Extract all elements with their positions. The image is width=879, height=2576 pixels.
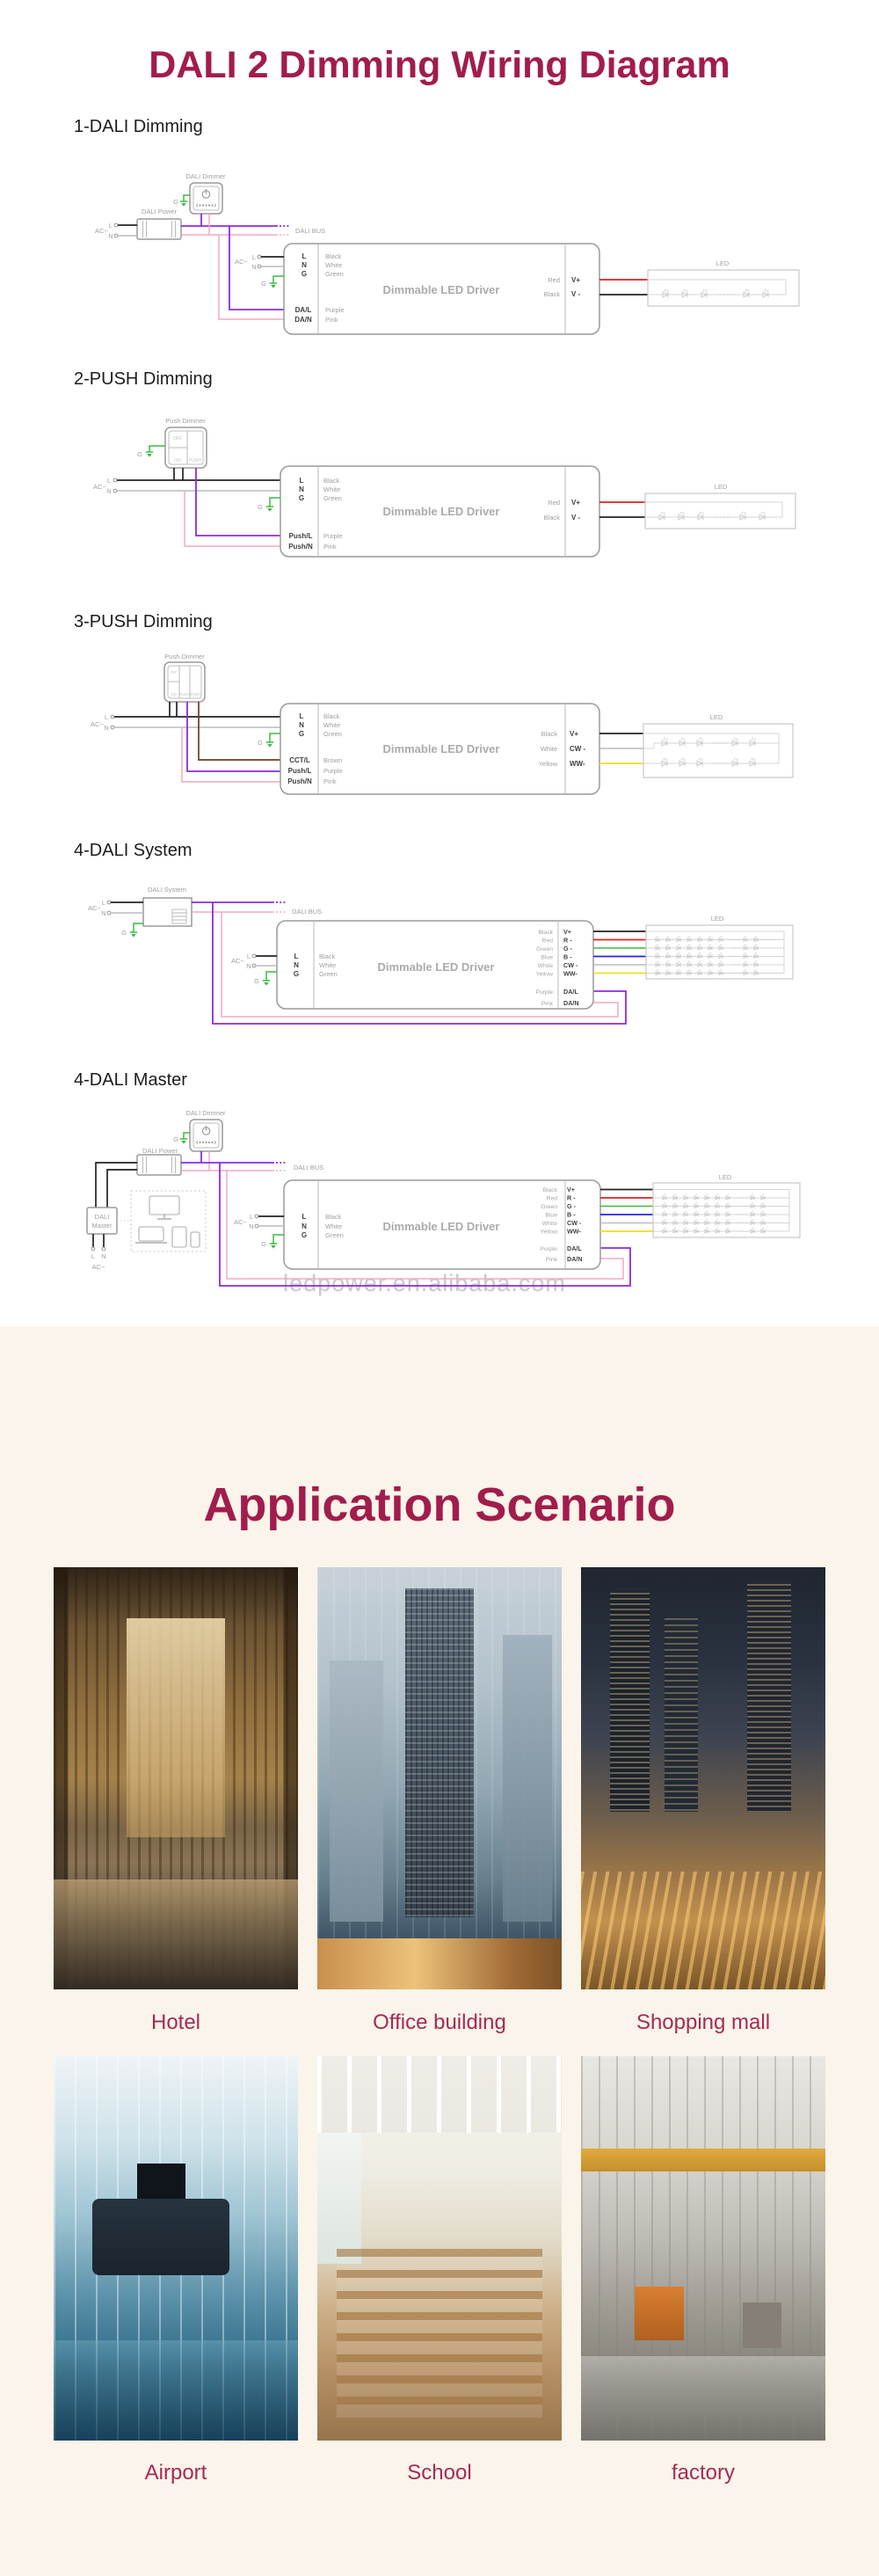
terminal-g: G (294, 970, 299, 978)
terminal-dot (252, 954, 256, 958)
dali-bus-label: DALI BUS (295, 227, 325, 235)
photo-hotel-detail (127, 1618, 224, 1838)
photo-office-detail (330, 1660, 383, 1923)
photo-mall-detail (610, 1593, 649, 1813)
switch-on-label: ON (174, 458, 181, 463)
page-title: DALI 2 Dimming Wiring Diagram (0, 44, 879, 87)
switch-on-label: ON (171, 692, 176, 697)
terminal-pushn: Push/N (288, 543, 313, 551)
wiring-diagram-3-push-dimming: Push Dimmer OFF ON PUSH PUSH AC~ L N (0, 629, 879, 822)
terminal-dal: DA/L (567, 1244, 582, 1252)
terminal-dot (113, 478, 117, 482)
wire-color-label: Purple (535, 989, 553, 996)
photo-factory-detail (635, 2287, 684, 2340)
dali-power-device: DALI Power AC~ L N (95, 208, 181, 240)
led-label: LED (715, 483, 728, 491)
tablet-icon (172, 1227, 186, 1247)
wire-color-label: White (323, 721, 340, 729)
led-label: LED (719, 1173, 732, 1181)
photo-school-detail (317, 2056, 562, 2133)
diagram-1-heading: 1-DALI Dimming (74, 117, 203, 137)
photo-factory-detail (581, 2356, 825, 2441)
terminal-gout: G - (563, 945, 573, 952)
terminal-g: G (301, 270, 307, 278)
terminal-gout: G - (567, 1202, 577, 1210)
ac-label: AC~ (91, 720, 104, 728)
terminal-g: G (299, 494, 304, 502)
driver-name: Dimmable LED Driver (383, 505, 500, 518)
terminal-l: L (302, 252, 307, 260)
photo-school-detail (337, 2249, 542, 2418)
wire-color-label: Black (319, 952, 336, 960)
dali-bus-label: DALI BUS (294, 1164, 323, 1171)
wiring-diagram-5-dali-master: DALI Dimmer G DALI Power DALI Master (0, 1104, 879, 1293)
switch-push-label: PUSH (191, 692, 201, 697)
photo-mall-detail (581, 1872, 825, 1989)
ground-label: G (258, 503, 263, 511)
ground-icon (270, 1240, 277, 1249)
line-label: L (105, 713, 108, 721)
terminal-n: N (299, 721, 304, 729)
wire-color-label: Black (544, 290, 561, 298)
terminal-dan: DA/N (567, 1255, 583, 1263)
wire-color-label: Yellow (541, 1230, 557, 1236)
led-strip: LED (599, 259, 799, 306)
terminal-ww: WW- (563, 970, 578, 978)
wire-color-label: White (538, 963, 554, 969)
ground-icon (180, 198, 187, 207)
phone-icon (191, 1232, 200, 1247)
wire-color-label: Green (325, 1231, 344, 1239)
push-dimmer-label: Push Dimmer (164, 653, 205, 660)
ground-icon (270, 280, 277, 288)
photo-office-detail (503, 1635, 552, 1922)
wire-color-label: Black (541, 730, 558, 738)
switch-off-label: OFF (173, 436, 182, 441)
dali-power-label: DALI Power (142, 208, 178, 215)
driver-name: Dimmable LED Driver (378, 960, 495, 974)
neutral-label: N (108, 232, 113, 240)
ac-label: AC~ (92, 1263, 105, 1271)
terminal-cw: CW - (570, 745, 586, 753)
terminal-dot (113, 489, 117, 493)
wire-color-label: Red (548, 276, 560, 284)
terminal-g: G (301, 1231, 307, 1239)
wire-color-label: Pink (541, 1001, 554, 1007)
diagram-5-heading: 4-DALI Master (74, 1070, 187, 1091)
dali-system-label: DALI System (148, 886, 186, 894)
push-dimmer-device: Push Dimmer OFF ON PUSH G (137, 417, 207, 468)
wire-color-label: Black (325, 1213, 342, 1221)
ac-label: AC~ (231, 957, 244, 965)
terminal-dot (111, 715, 114, 719)
wire-color-label: White (541, 745, 557, 753)
caption-factory: factory (581, 2461, 825, 2485)
neutral-label: N (101, 909, 105, 917)
dali-master-label-line2: Master (92, 1222, 113, 1230)
line-label: L (250, 1213, 253, 1221)
terminal-dal: DA/L (563, 988, 578, 996)
photo-factory-detail (581, 2149, 825, 2171)
dali-dimmer-device: DALI Dimmer G (173, 172, 226, 214)
terminal-dot (102, 1247, 105, 1251)
ground-icon (266, 739, 273, 748)
led-driver: AC~ L N G L N G Black White Green Dimmab… (231, 921, 593, 1009)
diagram-4-heading: 4-DALI System (74, 841, 192, 861)
wire-color-label: Purple (540, 1246, 557, 1252)
caption-office-building: Office building (317, 2010, 562, 2035)
ground-label: G (258, 739, 263, 747)
ground-label: G (261, 280, 266, 288)
wire-color-label: Pink (546, 1257, 558, 1263)
wiring-diagram-4-dali-system: DALI System AC~ L N G DALI BUS (0, 875, 879, 1033)
ac-label: AC~ (234, 1218, 247, 1226)
wire-color-label: Green (541, 1204, 557, 1210)
terminal-vminus: V - (571, 290, 581, 298)
ac-label: AC~ (88, 904, 101, 912)
terminal-cw: CW - (563, 961, 578, 969)
push-dimmer-device: Push Dimmer OFF ON PUSH PUSH (164, 653, 205, 702)
wire-color-label: White (325, 1222, 342, 1230)
switch-push-label: PUSH (179, 692, 190, 697)
led-driver: L N G Black White Green G Push/L Push/N … (258, 466, 599, 557)
photo-office-building (317, 1567, 562, 1989)
led-driver: L N G Black White Green DA/L DA/N Purple… (235, 244, 599, 334)
ground-label: G (173, 198, 178, 206)
terminal-l: L (300, 477, 304, 485)
photo-factory (581, 2056, 825, 2441)
terminal-dot (107, 901, 111, 904)
led-label: LED (710, 713, 723, 721)
photo-airport-detail (92, 2199, 229, 2275)
terminal-pushl: Push/L (288, 767, 312, 775)
caption-airport: Airport (54, 2461, 298, 2485)
control-devices-group (117, 1191, 206, 1252)
photo-mall-detail (747, 1584, 791, 1812)
terminal-pushn: Push/N (287, 777, 312, 785)
ac-label: AC~ (235, 258, 248, 266)
wire-color-label: Red (548, 499, 560, 507)
terminal-vplus: V+ (571, 276, 580, 284)
terminal-vminus: V - (571, 514, 581, 522)
led-driver: L N G Black White Green G CCT/L Push/L P… (258, 704, 599, 794)
terminal-dal: DA/L (295, 306, 312, 314)
terminal-n: N (299, 485, 304, 493)
wire-color-label: White (323, 485, 340, 493)
photo-factory-detail (743, 2302, 781, 2348)
line-label: L (247, 952, 251, 960)
wire-color-label: Purple (325, 306, 345, 314)
neutral-label: N (251, 263, 256, 271)
ground-label: G (137, 450, 142, 458)
terminal-cctl: CCT/L (289, 756, 310, 764)
dali-dimmer-label: DALI Dimmer (185, 1109, 226, 1117)
wire-color-label: White (325, 261, 342, 269)
wire-color-label: White (542, 1221, 558, 1227)
terminal-l: L (300, 712, 304, 720)
wire-color-label: Brown (323, 756, 342, 764)
ground-label: G (173, 1135, 178, 1143)
terminal-dan: DA/N (563, 999, 579, 1007)
dali-dimmer-device: DALI Dimmer G (173, 1109, 226, 1151)
dali-dimmer-label: DALI Dimmer (185, 172, 226, 180)
terminal-n: N (301, 1222, 307, 1230)
ground-label: G (261, 1240, 266, 1248)
ground-icon (266, 503, 273, 512)
wiring-diagram-1-dali-dimming: DALI Dimmer G DALI Power AC~ L N (0, 141, 879, 356)
terminal-pushl: Push/L (289, 532, 313, 540)
wire-color-label: Green (319, 970, 338, 978)
ground-icon (130, 929, 137, 938)
line-label: L (109, 222, 113, 230)
caption-school: School (317, 2461, 562, 2485)
photo-office-detail (405, 1588, 474, 1917)
terminal-ww: WW- (567, 1228, 581, 1236)
terminal-dot (255, 1215, 258, 1218)
wire-color-label: Green (323, 494, 342, 502)
wire-color-label: Pink (323, 543, 337, 551)
terminal-ww: WW- (570, 760, 585, 768)
wire-color-label: Black (323, 477, 340, 485)
ground-label: G (254, 977, 259, 985)
wire-color-label: White (319, 961, 336, 969)
wire-color-label: Green (536, 946, 553, 952)
ac-label: AC~ (95, 227, 108, 235)
terminal-r: R - (563, 937, 572, 945)
led-strip: LED (593, 915, 793, 979)
led-strip: LED (600, 1173, 800, 1237)
caption-hotel: Hotel (54, 2010, 298, 2035)
dali-power-label: DALI Power (142, 1147, 178, 1155)
wire-color-label: Purple (323, 532, 343, 540)
wire-color-label: Black (325, 252, 342, 260)
terminal-b: B - (563, 953, 572, 961)
terminal-l: L (302, 1213, 307, 1221)
laptop-icon (135, 1227, 167, 1243)
terminal-l: L (294, 952, 299, 960)
photo-airport-detail (137, 2164, 186, 2198)
terminal-g: G (299, 730, 304, 738)
led-strip: LED (599, 483, 795, 529)
dali-power-device: DALI Power (137, 1147, 181, 1175)
wire-color-label: Yellow (536, 972, 553, 978)
terminal-dot (258, 255, 261, 259)
driver-name: Dimmable LED Driver (383, 1220, 500, 1233)
terminal-n: N (301, 261, 307, 269)
led-label: LED (716, 259, 730, 267)
wire-color-label: Blue (541, 955, 553, 961)
led-driver: AC~ L N L N G Black White Green G Dimmab… (234, 1180, 600, 1269)
photo-mall-detail (665, 1618, 699, 1813)
terminal-b: B - (567, 1211, 576, 1219)
photo-airport (54, 2056, 298, 2441)
wire-color-label: Black (542, 1187, 557, 1193)
neutral-label: N (246, 962, 251, 970)
terminal-vplus: V+ (563, 928, 571, 936)
terminal-vplus: V+ (571, 499, 580, 507)
wire-color-label: Red (547, 1196, 558, 1202)
terminal-cw: CW - (567, 1219, 582, 1227)
application-scenario-title: Application Scenario (0, 1478, 879, 1532)
terminal-dan: DA/N (294, 316, 312, 324)
neutral-label: N (106, 487, 111, 495)
wire-color-label: Black (538, 930, 553, 936)
input-wires: AC~ L N (91, 702, 280, 782)
photo-school-detail (317, 2133, 361, 2264)
terminal-vplus: V+ (567, 1186, 575, 1193)
wire-color-label: Green (323, 730, 342, 738)
wiring-diagram-section: DALI 2 Dimming Wiring Diagram 1-DALI Dim… (0, 0, 879, 1326)
caption-shopping-mall: Shopping mall (581, 2010, 825, 2035)
terminal-dot (91, 1247, 95, 1251)
line-label: L (102, 899, 105, 907)
photo-office-detail (317, 1938, 562, 1989)
ground-icon (263, 977, 270, 986)
terminal-r: R - (567, 1194, 576, 1202)
wiring-diagram-2-push-dimming: Push Dimmer OFF ON PUSH G AC~ L N (0, 387, 879, 594)
terminal-n: N (294, 961, 299, 969)
ground-icon (146, 449, 153, 457)
wire-color-label: Black (323, 712, 340, 720)
application-scenario-section: Application Scenario Hotel Office buildi… (0, 1326, 879, 2576)
led-label: LED (711, 915, 724, 923)
dali-master-label-line1: DALI (95, 1213, 110, 1221)
wire-color-label: Blue (545, 1213, 557, 1219)
photo-hotel (54, 1567, 298, 1989)
wire-color-label: Red (542, 938, 554, 945)
photo-shopping-mall (581, 1567, 825, 1989)
driver-name: Dimmable LED Driver (383, 283, 500, 296)
line-label: L (107, 477, 111, 485)
terminal-dot (114, 223, 118, 227)
terminal-dot (114, 234, 118, 237)
ground-label: G (121, 929, 127, 937)
wire-color-label: Pink (325, 316, 338, 324)
wire-color-label: Black (544, 514, 561, 522)
terminal-dot (111, 726, 114, 729)
photo-school (317, 2056, 562, 2441)
dali-bus-label: DALI BUS (292, 908, 322, 916)
neutral-label: N (249, 1222, 253, 1230)
input-wires: AC~ L N (93, 468, 280, 546)
neutral-label: N (101, 1252, 105, 1260)
led-strip: LED (599, 713, 793, 777)
ground-icon (180, 1135, 187, 1144)
wire-color-label: Yellow (539, 760, 558, 768)
line-label: L (252, 253, 256, 261)
push-dimmer-label: Push Dimmer (165, 417, 206, 425)
dali-system-device: DALI System AC~ L N G (88, 886, 192, 938)
photo-airport-detail (54, 2340, 298, 2441)
product-description-page: DALI 2 Dimming Wiring Diagram 1-DALI Dim… (0, 0, 879, 2576)
line-label: L (91, 1252, 95, 1260)
neutral-label: N (104, 724, 108, 732)
terminal-vplus: V+ (570, 730, 578, 738)
terminal-dot (258, 265, 261, 268)
terminal-dot (255, 1224, 258, 1228)
switch-off-label: OFF (170, 670, 178, 675)
wire-color-label: Pink (323, 777, 337, 785)
terminal-dot (107, 911, 111, 915)
monitor-icon (149, 1196, 179, 1219)
wire-color-label: Green (325, 270, 344, 278)
terminal-dot (252, 964, 256, 967)
dali-master-device: DALI Master L N AC~ (87, 1163, 137, 1271)
ac-label: AC~ (93, 483, 106, 491)
photo-hotel-detail (54, 1879, 298, 1989)
driver-name: Dimmable LED Driver (383, 742, 500, 755)
wire-color-label: Purple (323, 767, 343, 775)
switch-push-label: PUSH (189, 458, 201, 463)
